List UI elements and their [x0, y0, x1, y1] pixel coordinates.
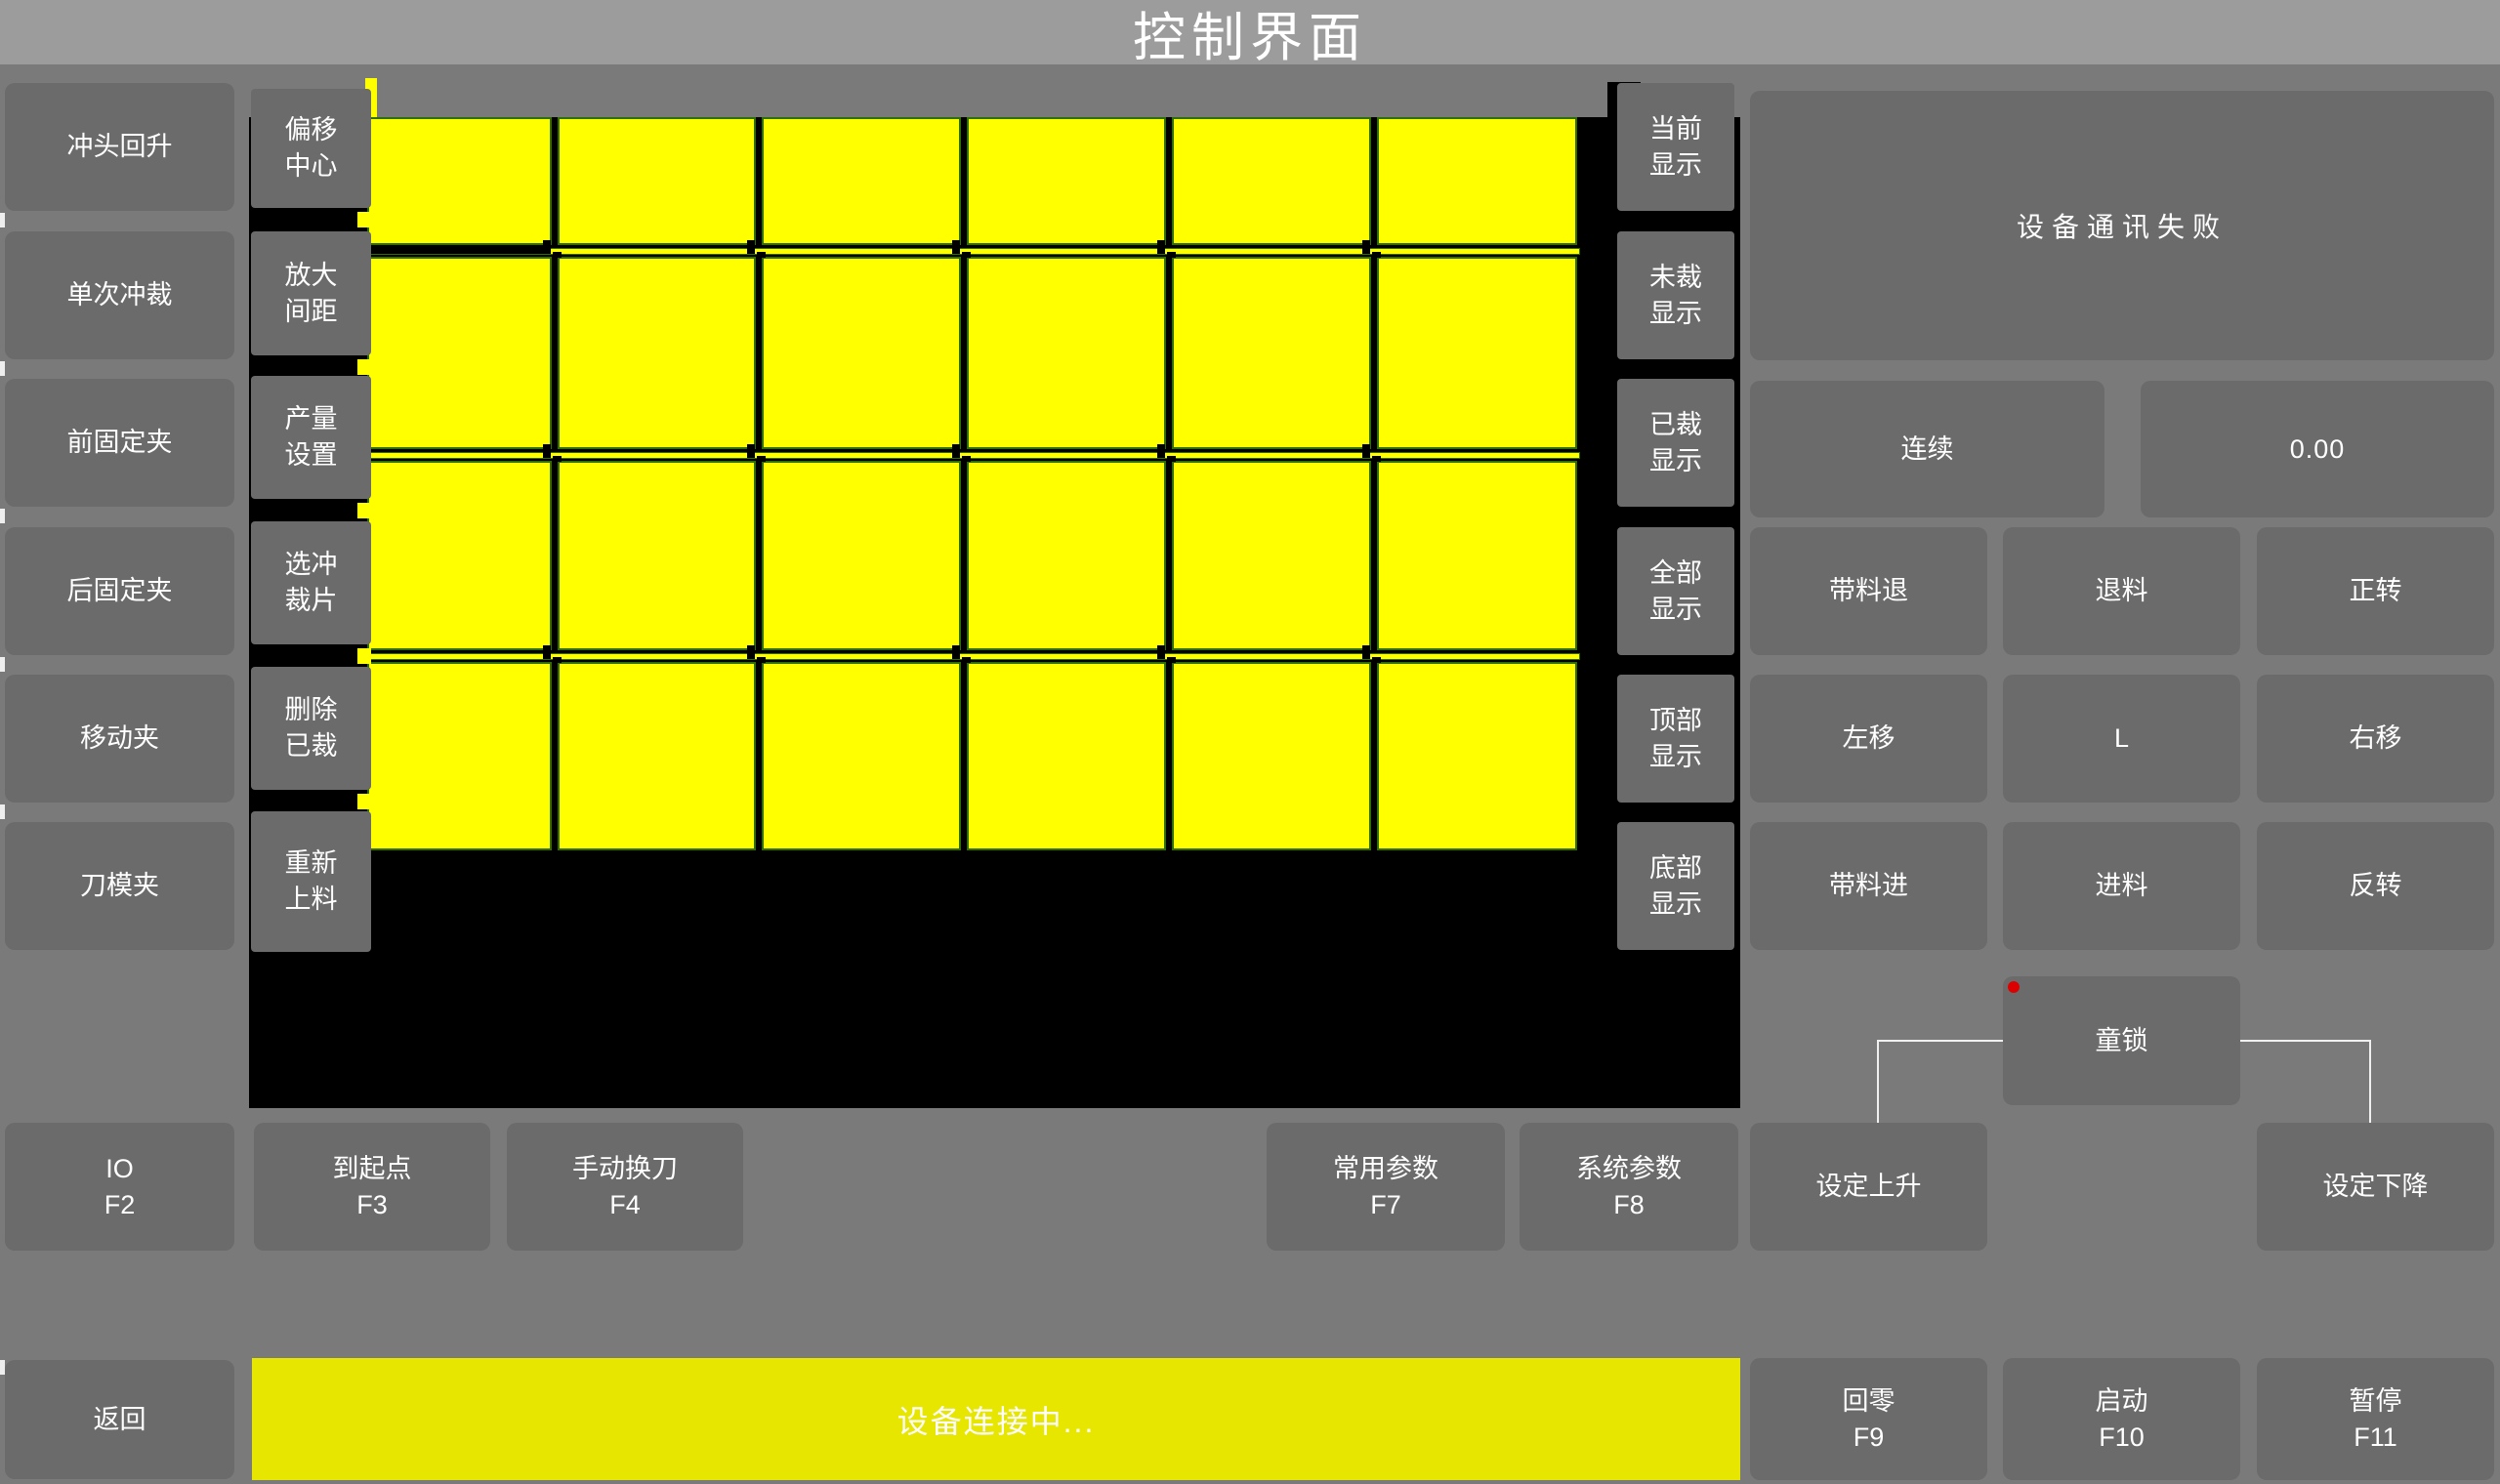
- intersection-notch: [747, 645, 755, 659]
- intersection-notch: [747, 240, 755, 254]
- intersection-notch: [1157, 240, 1165, 254]
- function-key-code: F7: [1370, 1187, 1401, 1223]
- intersection-notch: [1372, 456, 1381, 462]
- intersection-notch: [952, 645, 960, 659]
- cut-piece-r4c4[interactable]: [967, 662, 1166, 850]
- left-button-5[interactable]: 移动夹: [5, 675, 234, 803]
- left-button-1[interactable]: 冲头回升: [5, 83, 234, 211]
- cut-piece-r2c1[interactable]: [367, 257, 552, 449]
- tool-button-3[interactable]: 产量 设置: [251, 376, 371, 499]
- intersection-notch: [1372, 657, 1381, 663]
- comm-status-text: 设备通讯失败: [2017, 206, 2228, 245]
- child-lock-button[interactable]: 童锁: [2003, 976, 2240, 1105]
- comm-status-box: 设备通讯失败: [1750, 91, 2494, 360]
- function-key-F3[interactable]: 到起点F3: [254, 1123, 490, 1251]
- cut-piece-r1c2[interactable]: [558, 117, 756, 245]
- row-boundary-dash: [369, 246, 551, 254]
- display-button-5[interactable]: 顶部 显示: [1617, 675, 1734, 803]
- intersection-notch: [1157, 444, 1165, 458]
- motion-button-带料退[interactable]: 带料退: [1750, 527, 1987, 655]
- mode-button[interactable]: 连续: [1750, 381, 2104, 517]
- left-button-6[interactable]: 刀模夹: [5, 822, 234, 950]
- intersection-notch: [952, 444, 960, 458]
- cut-piece-r4c3[interactable]: [762, 662, 961, 850]
- child-lock-red-dot-icon: [2008, 981, 2020, 993]
- set-rise-button[interactable]: 设定上升: [1750, 1123, 1987, 1251]
- cut-piece-r3c3[interactable]: [762, 461, 961, 650]
- function-key-F7[interactable]: 常用参数F7: [1267, 1123, 1505, 1251]
- tool-button-4[interactable]: 选冲 裁片: [251, 521, 371, 644]
- function-key-F4[interactable]: 手动换刀F4: [507, 1123, 743, 1251]
- intersection-notch: [757, 657, 766, 663]
- bottom-key-code: F10: [2099, 1420, 2145, 1456]
- intersection-notch: [553, 252, 562, 258]
- tool-button-1[interactable]: 偏移 中心: [251, 89, 371, 208]
- intersection-notch: [1362, 444, 1370, 458]
- bottom-key-label: 启动: [2096, 1383, 2148, 1420]
- bottom-key-F11[interactable]: 暂停F11: [2257, 1358, 2494, 1480]
- bottom-key-label: 暂停: [2350, 1383, 2402, 1420]
- motion-button-左移[interactable]: 左移: [1750, 675, 1987, 803]
- cut-piece-r1c4[interactable]: [967, 117, 1166, 245]
- edge-tick-mark: [0, 509, 5, 523]
- cut-piece-r1c1[interactable]: [367, 117, 552, 245]
- intersection-notch: [962, 657, 971, 663]
- title-bar: 控制界面: [0, 0, 2500, 64]
- display-button-2[interactable]: 未裁 显示: [1617, 231, 1734, 359]
- cut-piece-r1c5[interactable]: [1172, 117, 1371, 245]
- cut-piece-r3c4[interactable]: [967, 461, 1166, 650]
- display-button-1[interactable]: 当前 显示: [1617, 83, 1734, 211]
- edge-tick-mark: [0, 361, 5, 376]
- motion-button-右移[interactable]: 右移: [2257, 675, 2494, 803]
- back-button[interactable]: 返回: [5, 1360, 234, 1479]
- motion-button-反转[interactable]: 反转: [2257, 822, 2494, 950]
- left-button-3[interactable]: 前固定夹: [5, 379, 234, 507]
- set-lower-button[interactable]: 设定下降: [2257, 1123, 2494, 1251]
- intersection-notch: [757, 252, 766, 258]
- cut-piece-r3c5[interactable]: [1172, 461, 1371, 650]
- bottom-key-label: 回零: [1843, 1383, 1896, 1420]
- intersection-notch: [1167, 456, 1176, 462]
- display-button-6[interactable]: 底部 显示: [1617, 822, 1734, 950]
- edge-tick-mark: [0, 804, 5, 819]
- function-key-code: F3: [356, 1187, 388, 1223]
- intersection-notch: [1157, 645, 1165, 659]
- intersection-notch: [1362, 645, 1370, 659]
- cut-piece-r4c1[interactable]: [367, 662, 552, 850]
- function-key-code: F4: [609, 1187, 641, 1223]
- cut-piece-r2c6[interactable]: [1377, 257, 1577, 449]
- bottom-key-code: F9: [1854, 1420, 1885, 1456]
- intersection-notch: [757, 456, 766, 462]
- bottom-key-F9[interactable]: 回零F9: [1750, 1358, 1987, 1480]
- cut-piece-r2c3[interactable]: [762, 257, 961, 449]
- gap-piece-sliver: [357, 359, 371, 375]
- intersection-notch: [952, 240, 960, 254]
- display-button-3[interactable]: 已裁 显示: [1617, 379, 1734, 507]
- gap-piece-sliver: [357, 648, 371, 664]
- intersection-notch: [553, 456, 562, 462]
- gap-piece-sliver: [357, 794, 371, 809]
- cut-piece-r4c5[interactable]: [1172, 662, 1371, 850]
- left-button-2[interactable]: 单次冲裁: [5, 231, 234, 359]
- left-button-4[interactable]: 后固定夹: [5, 527, 234, 655]
- function-key-code: F2: [104, 1187, 136, 1223]
- function-key-label: 到起点: [333, 1151, 412, 1187]
- gap-piece-sliver: [357, 503, 371, 518]
- function-key-label: 手动换刀: [572, 1151, 678, 1187]
- cut-piece-r4c6[interactable]: [1377, 662, 1577, 850]
- cut-piece-r3c6[interactable]: [1377, 461, 1577, 650]
- motion-button-L[interactable]: L: [2003, 675, 2240, 803]
- function-key-F2[interactable]: IOF2: [5, 1123, 234, 1251]
- cut-piece-r2c4[interactable]: [967, 257, 1166, 449]
- cut-piece-r3c1[interactable]: [367, 461, 552, 650]
- motion-button-正转[interactable]: 正转: [2257, 527, 2494, 655]
- tool-button-2[interactable]: 放大 间距: [251, 231, 371, 355]
- cut-piece-r4c2[interactable]: [558, 662, 756, 850]
- edge-tick-mark: [0, 213, 5, 227]
- cut-piece-r2c2[interactable]: [558, 257, 756, 449]
- function-key-label: 系统参数: [1576, 1151, 1682, 1187]
- function-key-code: F8: [1613, 1187, 1645, 1223]
- intersection-notch: [962, 456, 971, 462]
- intersection-notch: [543, 645, 551, 659]
- gap-piece-sliver: [357, 212, 371, 227]
- display-button-4[interactable]: 全部 显示: [1617, 527, 1734, 655]
- intersection-notch: [543, 444, 551, 458]
- cut-piece-r3c2[interactable]: [558, 461, 756, 650]
- function-key-label: 常用参数: [1333, 1151, 1438, 1187]
- intersection-notch: [553, 657, 562, 663]
- tool-button-5[interactable]: 删除 已裁: [251, 667, 371, 790]
- bottom-key-F10[interactable]: 启动F10: [2003, 1358, 2240, 1480]
- intersection-notch: [1167, 252, 1176, 258]
- edge-tick-mark: [0, 657, 5, 672]
- value-display: 0.00: [2141, 381, 2494, 517]
- cut-piece-r1c3[interactable]: [762, 117, 961, 245]
- function-key-F8[interactable]: 系统参数F8: [1520, 1123, 1738, 1251]
- motion-button-带料进[interactable]: 带料进: [1750, 822, 1987, 950]
- intersection-notch: [962, 252, 971, 258]
- function-key-label: IO: [105, 1151, 134, 1187]
- page-title: 控制界面: [1133, 0, 1367, 71]
- bottom-key-code: F11: [2354, 1420, 2397, 1456]
- connection-status-bar: 设备连接中...: [252, 1358, 1740, 1480]
- intersection-notch: [1362, 240, 1370, 254]
- tool-button-6[interactable]: 重新 上料: [251, 811, 371, 952]
- cut-piece-r1c6[interactable]: [1377, 117, 1577, 245]
- motion-button-退料[interactable]: 退料: [2003, 527, 2240, 655]
- connection-status-text: 设备连接中...: [897, 1397, 1096, 1442]
- intersection-notch: [1167, 657, 1176, 663]
- cut-piece-r2c5[interactable]: [1172, 257, 1371, 449]
- intersection-notch: [1372, 252, 1381, 258]
- motion-button-进料[interactable]: 进料: [2003, 822, 2240, 950]
- intersection-notch: [747, 444, 755, 458]
